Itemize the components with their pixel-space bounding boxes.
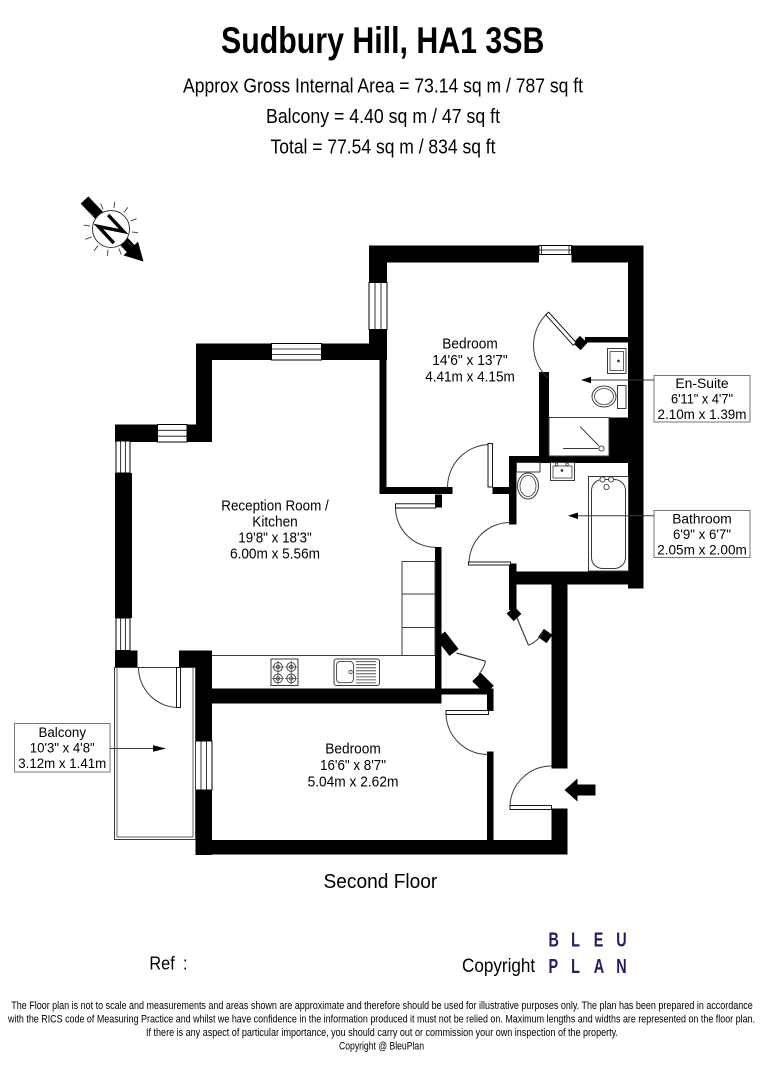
svg-text:B: B	[549, 928, 559, 951]
svg-text:Sudbury Hill, HA1 3SB: Sudbury Hill, HA1 3SB	[221, 20, 544, 61]
svg-text:Second Floor: Second Floor	[324, 870, 438, 893]
svg-text:with the RICS code of Measurin: with the RICS code of Measuring Practice…	[7, 1013, 755, 1025]
svg-text:10'3" x 4'8": 10'3" x 4'8"	[30, 741, 95, 756]
svg-text:6.00m x 5.56m: 6.00m x 5.56m	[230, 547, 320, 563]
svg-text::: :	[183, 952, 188, 973]
svg-text:P: P	[549, 954, 559, 977]
svg-text:4.41m x 4.15m: 4.41m x 4.15m	[425, 369, 515, 385]
svg-text:Copyright: Copyright	[462, 955, 535, 976]
svg-text:Approx Gross Internal Area = 7: Approx Gross Internal Area = 73.14 sq m …	[183, 76, 583, 98]
svg-text:Kitchen: Kitchen	[252, 514, 298, 530]
svg-text:14'6" x 13'7": 14'6" x 13'7"	[432, 353, 508, 369]
svg-text:2.05m x 2.00m: 2.05m x 2.00m	[657, 542, 747, 557]
svg-text:N: N	[616, 954, 626, 977]
svg-text:Bedroom: Bedroom	[442, 336, 497, 352]
svg-text:En-Suite: En-Suite	[675, 376, 728, 391]
svg-text:2.10m x 1.39m: 2.10m x 1.39m	[658, 407, 747, 422]
svg-text:Balcony = 4.40 sq m / 47 sq ft: Balcony = 4.40 sq m / 47 sq ft	[266, 106, 500, 128]
svg-text:19'8" x 18'3": 19'8" x 18'3"	[238, 531, 312, 547]
svg-text:E: E	[594, 928, 604, 951]
svg-text:3.12m x 1.41m: 3.12m x 1.41m	[18, 756, 106, 771]
svg-text:Total = 77.54 sq m / 834 sq ft: Total = 77.54 sq m / 834 sq ft	[271, 137, 496, 159]
svg-text:Bedroom: Bedroom	[325, 742, 381, 758]
svg-text:The Floor plan is not to scale: The Floor plan is not to scale and measu…	[11, 1000, 753, 1012]
svg-text:16'6" x 8'7": 16'6" x 8'7"	[320, 758, 386, 774]
svg-text:Ref: Ref	[149, 952, 174, 973]
svg-text:6'9" x 6'7": 6'9" x 6'7"	[673, 527, 731, 542]
svg-text:Bathroom: Bathroom	[672, 511, 732, 526]
svg-text:L: L	[571, 954, 580, 977]
svg-text:U: U	[616, 928, 626, 951]
svg-text:Copyright @ BleuPlan: Copyright @ BleuPlan	[339, 1040, 424, 1052]
svg-text:5.04m x 2.62m: 5.04m x 2.62m	[308, 774, 399, 790]
svg-text:6'11" x 4'7": 6'11" x 4'7"	[671, 392, 733, 407]
svg-text:L: L	[571, 928, 580, 951]
svg-text:Reception Room /: Reception Room /	[221, 498, 329, 514]
svg-text:A: A	[594, 954, 605, 977]
svg-text:Balcony: Balcony	[38, 725, 86, 740]
svg-text:If there is any aspect of part: If there is any aspect of particular imp…	[146, 1027, 618, 1039]
